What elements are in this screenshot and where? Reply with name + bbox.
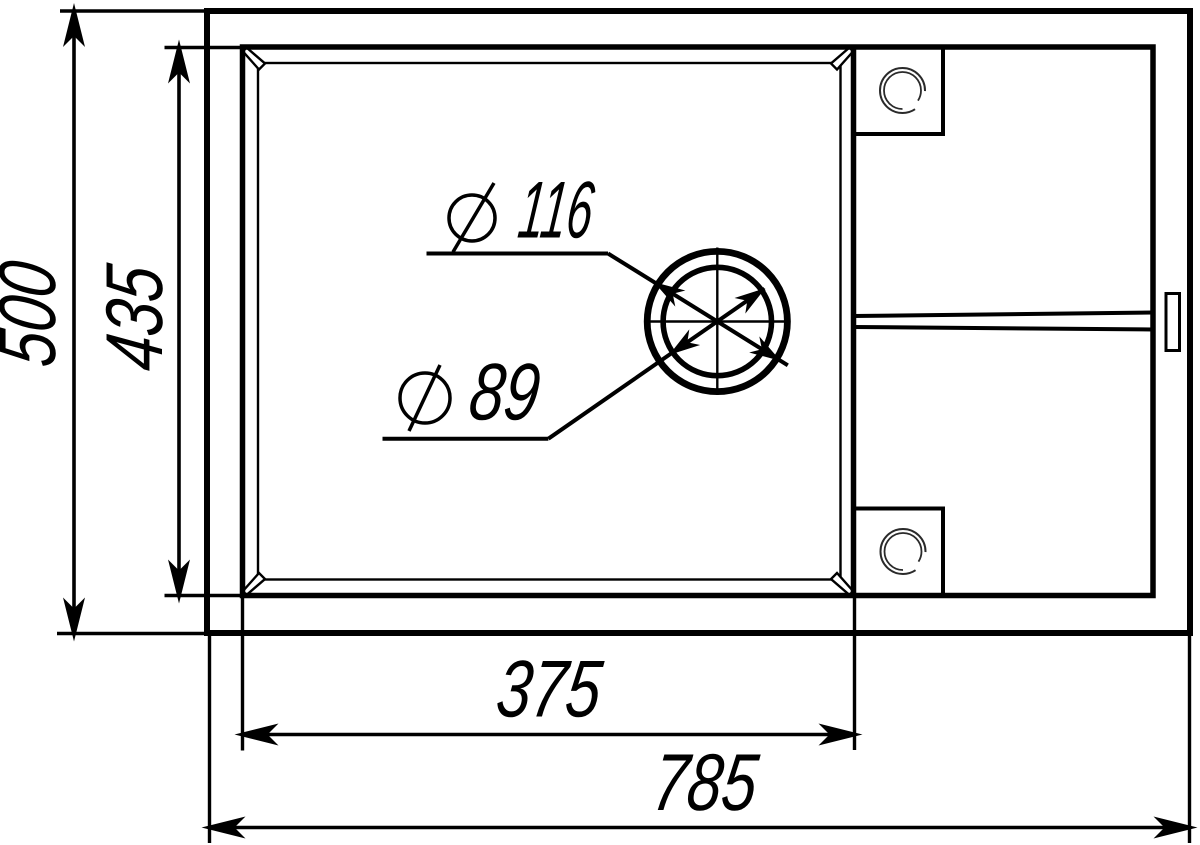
svg-text:116: 116	[514, 164, 599, 254]
svg-text:435: 435	[91, 260, 180, 375]
svg-text:89: 89	[465, 348, 545, 437]
svg-text:375: 375	[492, 645, 607, 734]
svg-text:500: 500	[0, 256, 73, 371]
svg-text:785: 785	[648, 739, 763, 828]
